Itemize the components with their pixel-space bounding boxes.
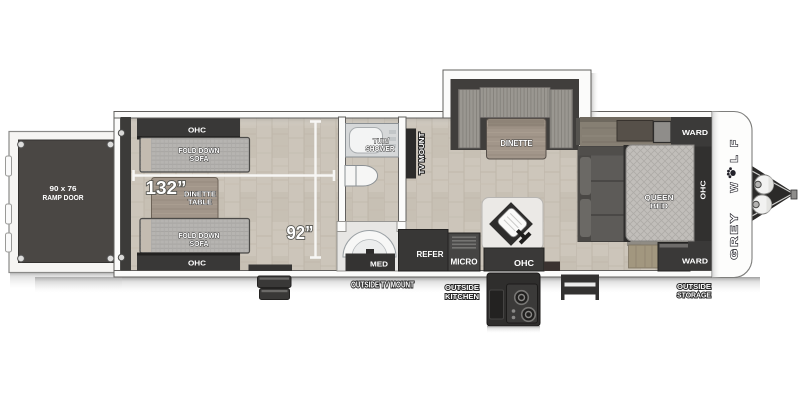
svg-text:132”: 132”	[146, 178, 187, 198]
svg-text:STORAGE: STORAGE	[677, 291, 711, 300]
svg-text:SOFA: SOFA	[190, 241, 209, 248]
svg-text:LF: LF	[729, 132, 741, 163]
svg-text:OHC: OHC	[701, 181, 708, 200]
svg-text:GREY: GREY	[729, 212, 741, 260]
svg-text:TABLE: TABLE	[188, 200, 212, 207]
svg-text:SOFA: SOFA	[190, 156, 209, 163]
svg-text:OHC: OHC	[188, 259, 207, 268]
svg-text:MED: MED	[370, 260, 388, 269]
svg-text:90 x 76: 90 x 76	[50, 184, 77, 193]
svg-text:DINETTE: DINETTE	[184, 192, 216, 199]
svg-text:RAMP DOOR: RAMP DOOR	[43, 193, 84, 202]
svg-text:OUTSIDE TV MOUNT: OUTSIDE TV MOUNT	[351, 281, 414, 290]
svg-text:OUTSIDE: OUTSIDE	[445, 283, 479, 292]
svg-text:REFER: REFER	[417, 250, 444, 259]
svg-text:BED: BED	[650, 202, 669, 211]
svg-text:WARD: WARD	[682, 128, 709, 137]
svg-text:OHC: OHC	[514, 259, 534, 268]
svg-text:TV MOUNT: TV MOUNT	[417, 132, 426, 175]
svg-text:SHOWER: SHOWER	[366, 144, 396, 153]
svg-text:W: W	[729, 183, 741, 193]
svg-text:FOLD DOWN: FOLD DOWN	[179, 148, 220, 155]
svg-text:KITCHEN: KITCHEN	[445, 292, 479, 301]
svg-text:OHC: OHC	[188, 126, 207, 135]
svg-text:DINETTE: DINETTE	[501, 138, 533, 148]
svg-text:MICRO: MICRO	[451, 258, 478, 267]
svg-text:FOLD DOWN: FOLD DOWN	[179, 233, 220, 240]
svg-text:WARD: WARD	[682, 257, 709, 266]
svg-text:92”: 92”	[287, 223, 314, 243]
